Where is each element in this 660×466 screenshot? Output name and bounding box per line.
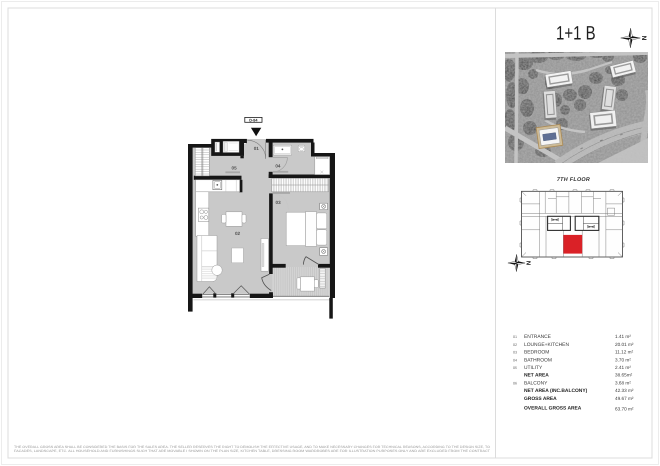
svg-text:BEDROOM: BEDROOM (524, 350, 549, 356)
svg-text:04: 04 (513, 358, 517, 362)
svg-text:NET AREA (INC.BALCONY): NET AREA (INC.BALCONY) (524, 388, 588, 394)
svg-text:BALCONY: BALCONY (524, 380, 548, 386)
svg-text:D-84: D-84 (249, 118, 258, 122)
svg-text:OVERALL GROSS AREA: OVERALL GROSS AREA (524, 405, 582, 411)
svg-text:2.41 m²: 2.41 m² (615, 365, 631, 370)
svg-text:06: 06 (513, 381, 517, 385)
svg-text:49.67 m²: 49.67 m² (615, 396, 634, 401)
svg-text:01: 01 (513, 335, 517, 339)
svg-text:3.68 m²: 3.68 m² (615, 380, 631, 385)
svg-text:38.65m²: 38.65m² (615, 373, 633, 378)
svg-text:3.70 m²: 3.70 m² (615, 357, 631, 362)
svg-text:05: 05 (513, 366, 517, 370)
svg-text:GROSS AREA: GROSS AREA (524, 396, 557, 402)
svg-text:BATHROOM: BATHROOM (524, 357, 552, 363)
svg-text:02: 02 (513, 343, 517, 347)
svg-text:ENTRANCE: ENTRANCE (524, 334, 552, 340)
svg-text:1.41 m²: 1.41 m² (615, 334, 631, 339)
svg-text:03: 03 (276, 200, 282, 205)
svg-text:11.12 m²: 11.12 m² (615, 350, 634, 355)
svg-text:UTILITY: UTILITY (524, 365, 543, 371)
svg-text:THE OVERALL GROSS AREA SHALL B: THE OVERALL GROSS AREA SHALL BE CONSIDER… (14, 445, 491, 449)
svg-text:NET AREA: NET AREA (524, 373, 549, 379)
svg-text:42.33 m²: 42.33 m² (615, 388, 634, 393)
svg-text:FACADES, LANDSCAPE, ETC. ALL H: FACADES, LANDSCAPE, ETC. ALL HOUSEHOLD A… (14, 449, 490, 453)
svg-text:1+1 B: 1+1 B (556, 23, 596, 45)
svg-text:7TH FLOOR: 7TH FLOOR (557, 177, 590, 183)
svg-text:20.01 m²: 20.01 m² (615, 342, 634, 347)
svg-text:02: 02 (235, 231, 241, 236)
svg-text:05: 05 (232, 166, 238, 171)
svg-text:63.70 m²: 63.70 m² (615, 406, 634, 411)
svg-text:01: 01 (254, 146, 260, 151)
svg-text:LOUNGE+KITCHEN: LOUNGE+KITCHEN (524, 342, 569, 348)
svg-text:04: 04 (275, 163, 281, 168)
svg-text:N: N (640, 36, 647, 41)
svg-text:N: N (525, 261, 532, 265)
svg-text:03: 03 (513, 351, 517, 355)
